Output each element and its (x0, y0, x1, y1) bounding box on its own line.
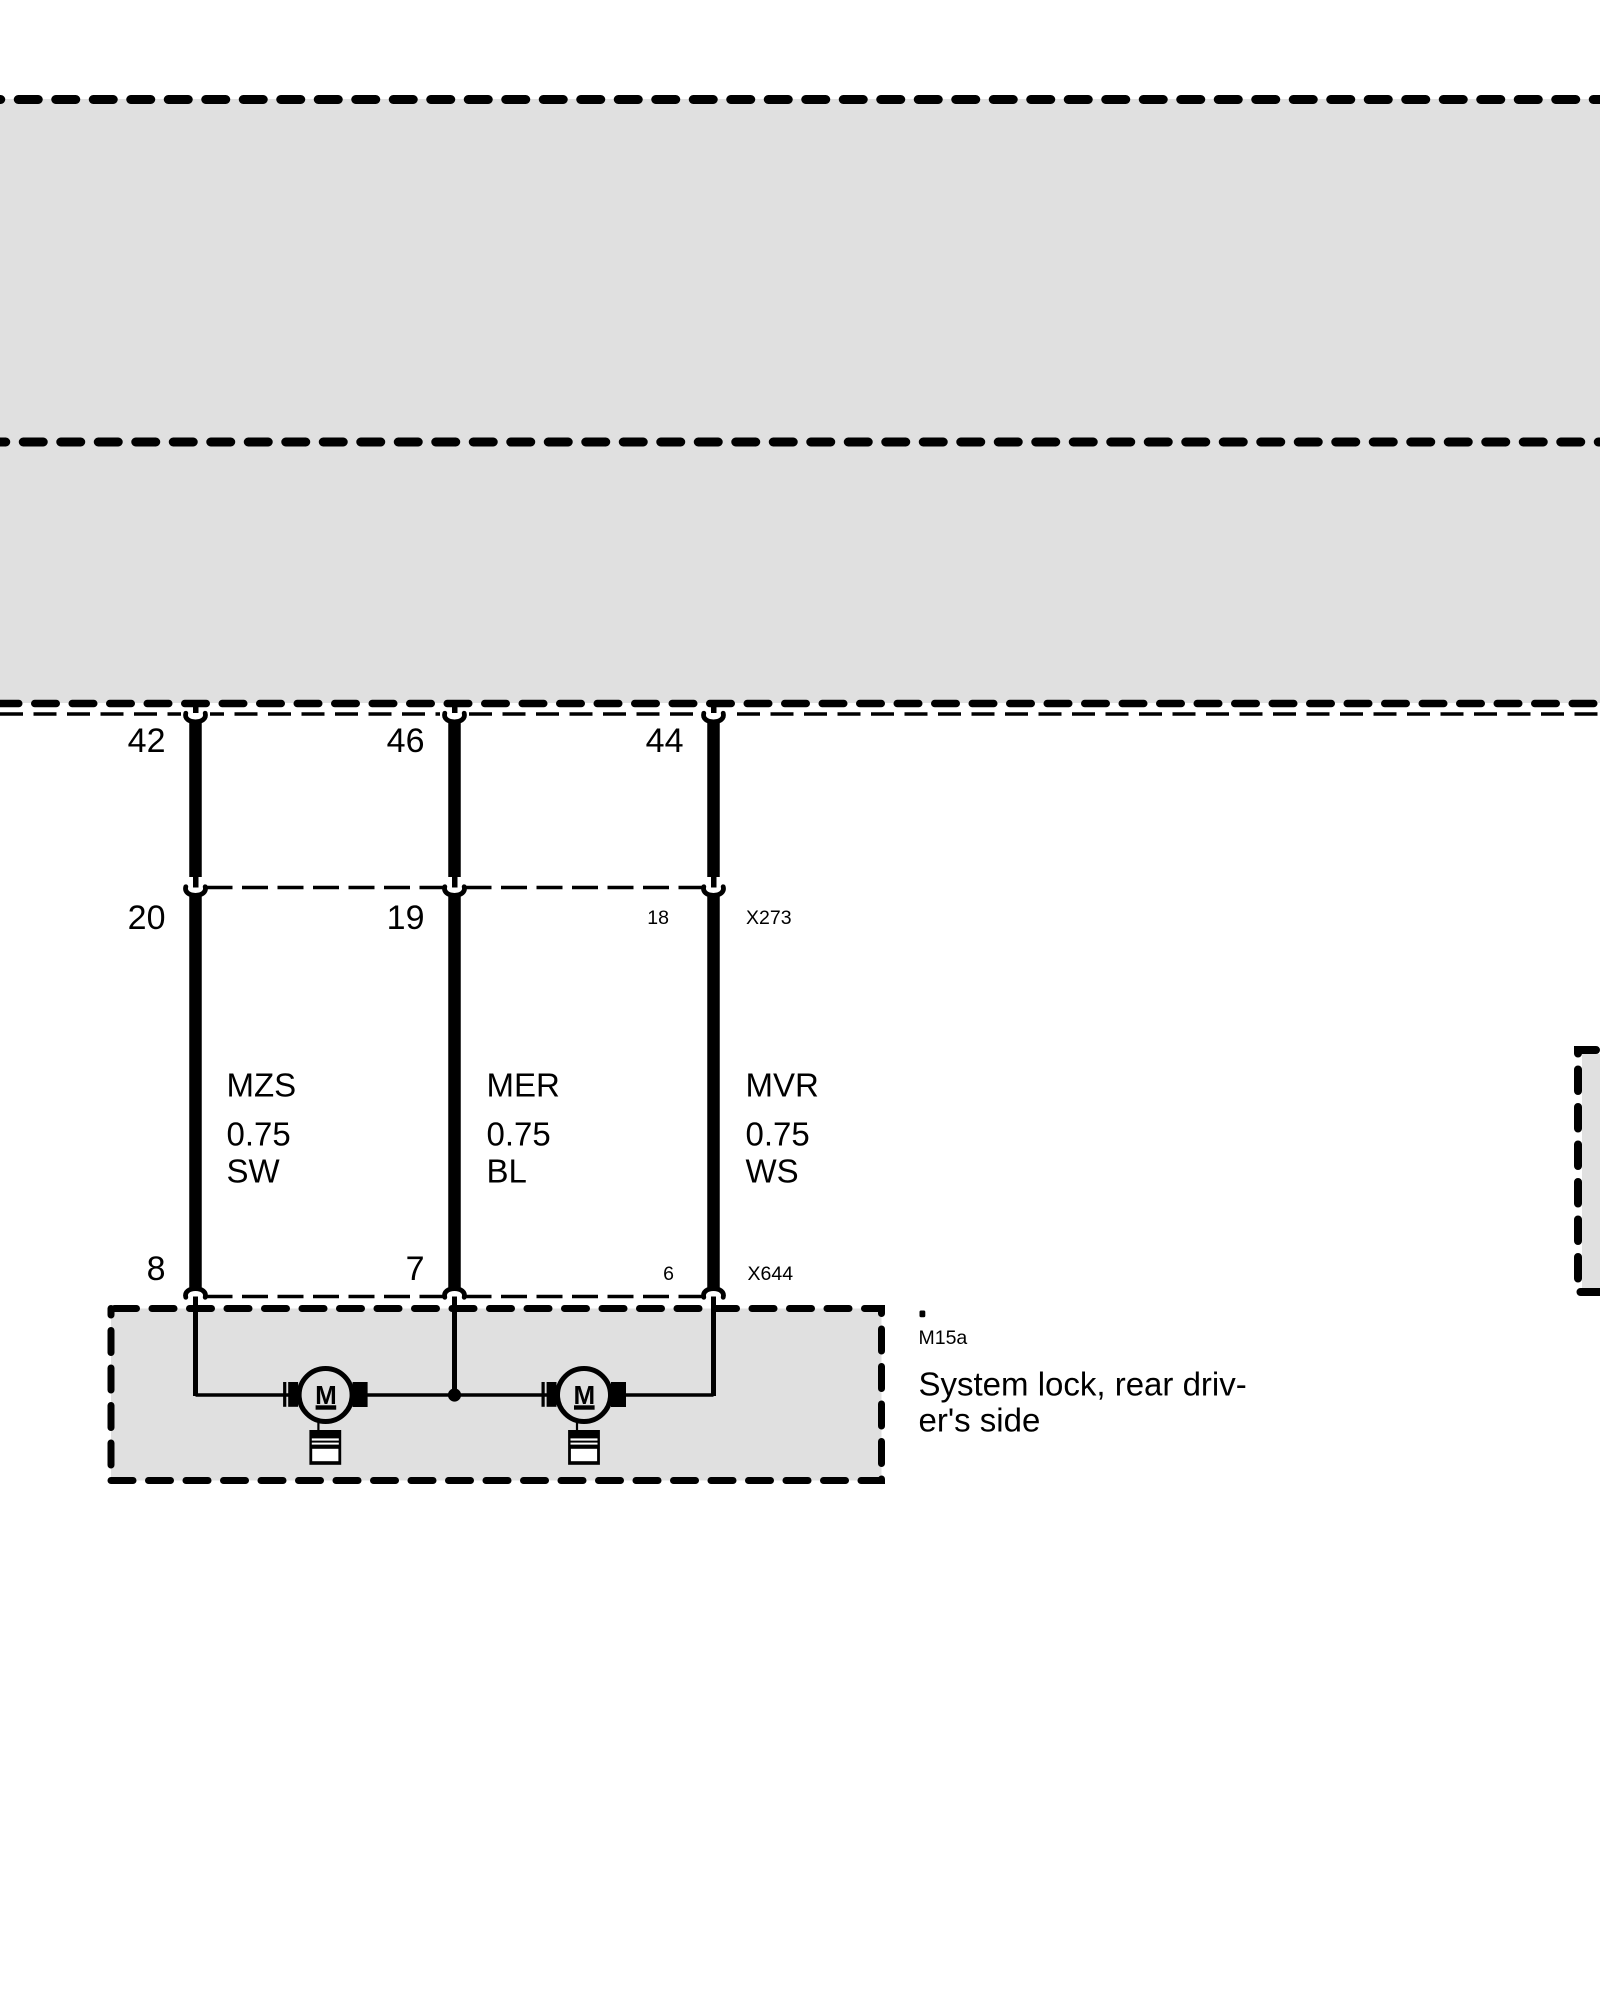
svg-text:System lock, rear driv-: System lock, rear driv- (919, 1366, 1247, 1403)
svg-text:0.75: 0.75 (746, 1116, 810, 1153)
svg-text:MVR: MVR (746, 1067, 819, 1104)
svg-text:WS: WS (746, 1153, 799, 1190)
svg-text:er's side: er's side (919, 1402, 1041, 1439)
svg-text:X273: X273 (746, 907, 792, 929)
svg-text:42: 42 (128, 722, 166, 760)
svg-text:8: 8 (147, 1250, 166, 1288)
svg-text:46: 46 (387, 722, 425, 760)
svg-text:44: 44 (646, 722, 684, 760)
svg-text:MZS: MZS (227, 1067, 297, 1104)
svg-text:18: 18 (647, 907, 669, 929)
svg-text:MER: MER (487, 1067, 560, 1104)
svg-text:6: 6 (663, 1263, 674, 1285)
svg-text:0.75: 0.75 (227, 1116, 291, 1153)
svg-text:7: 7 (406, 1250, 425, 1288)
svg-text:M15a: M15a (919, 1327, 968, 1349)
svg-text:0.75: 0.75 (487, 1116, 551, 1153)
svg-text:SW: SW (227, 1153, 281, 1190)
svg-text:BL: BL (487, 1153, 527, 1190)
svg-text:X644: X644 (748, 1263, 794, 1285)
svg-text:19: 19 (387, 899, 425, 937)
svg-text:20: 20 (128, 899, 166, 937)
